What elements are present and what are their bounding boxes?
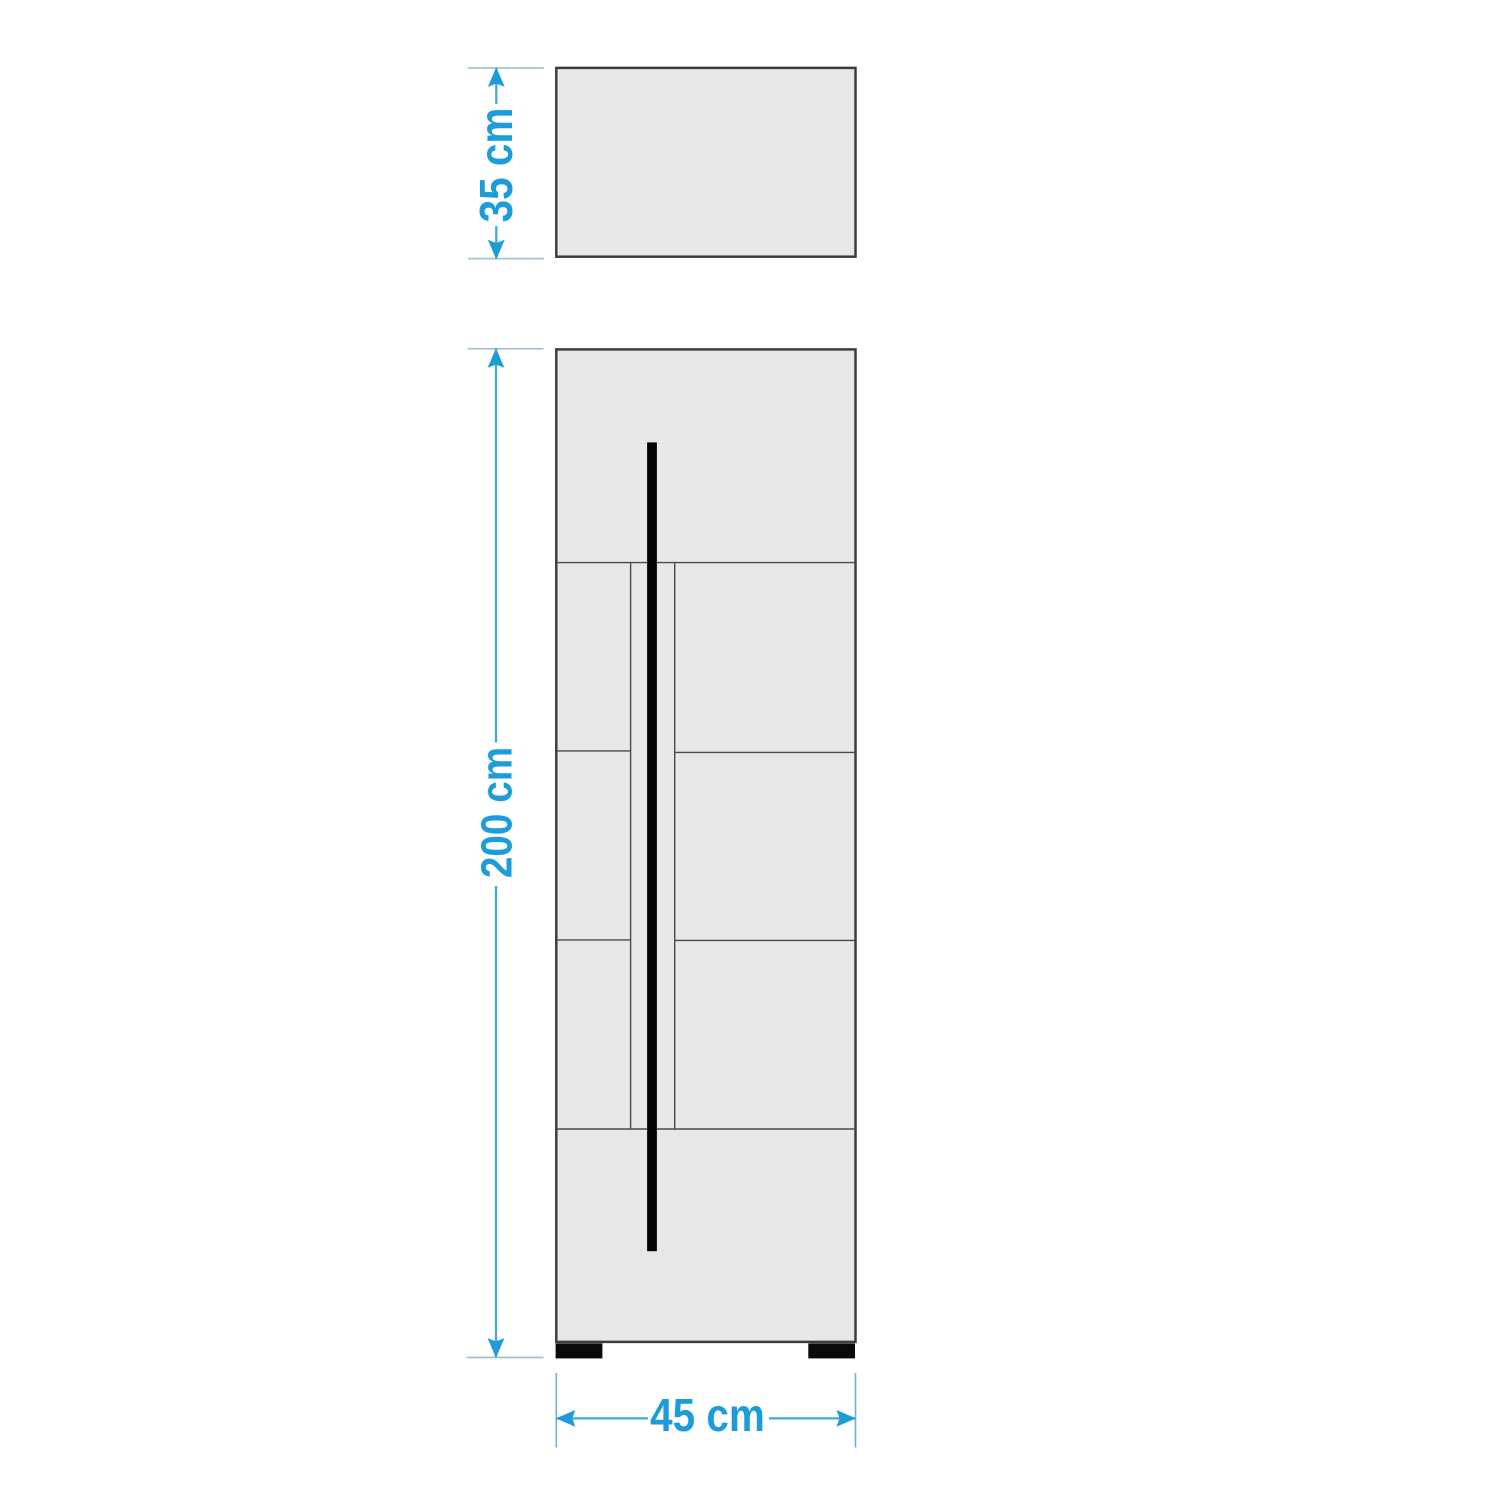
svg-text:45 cm: 45 cm [650, 1391, 765, 1442]
svg-text:200 cm: 200 cm [471, 747, 521, 878]
svg-text:35 cm: 35 cm [472, 108, 523, 223]
